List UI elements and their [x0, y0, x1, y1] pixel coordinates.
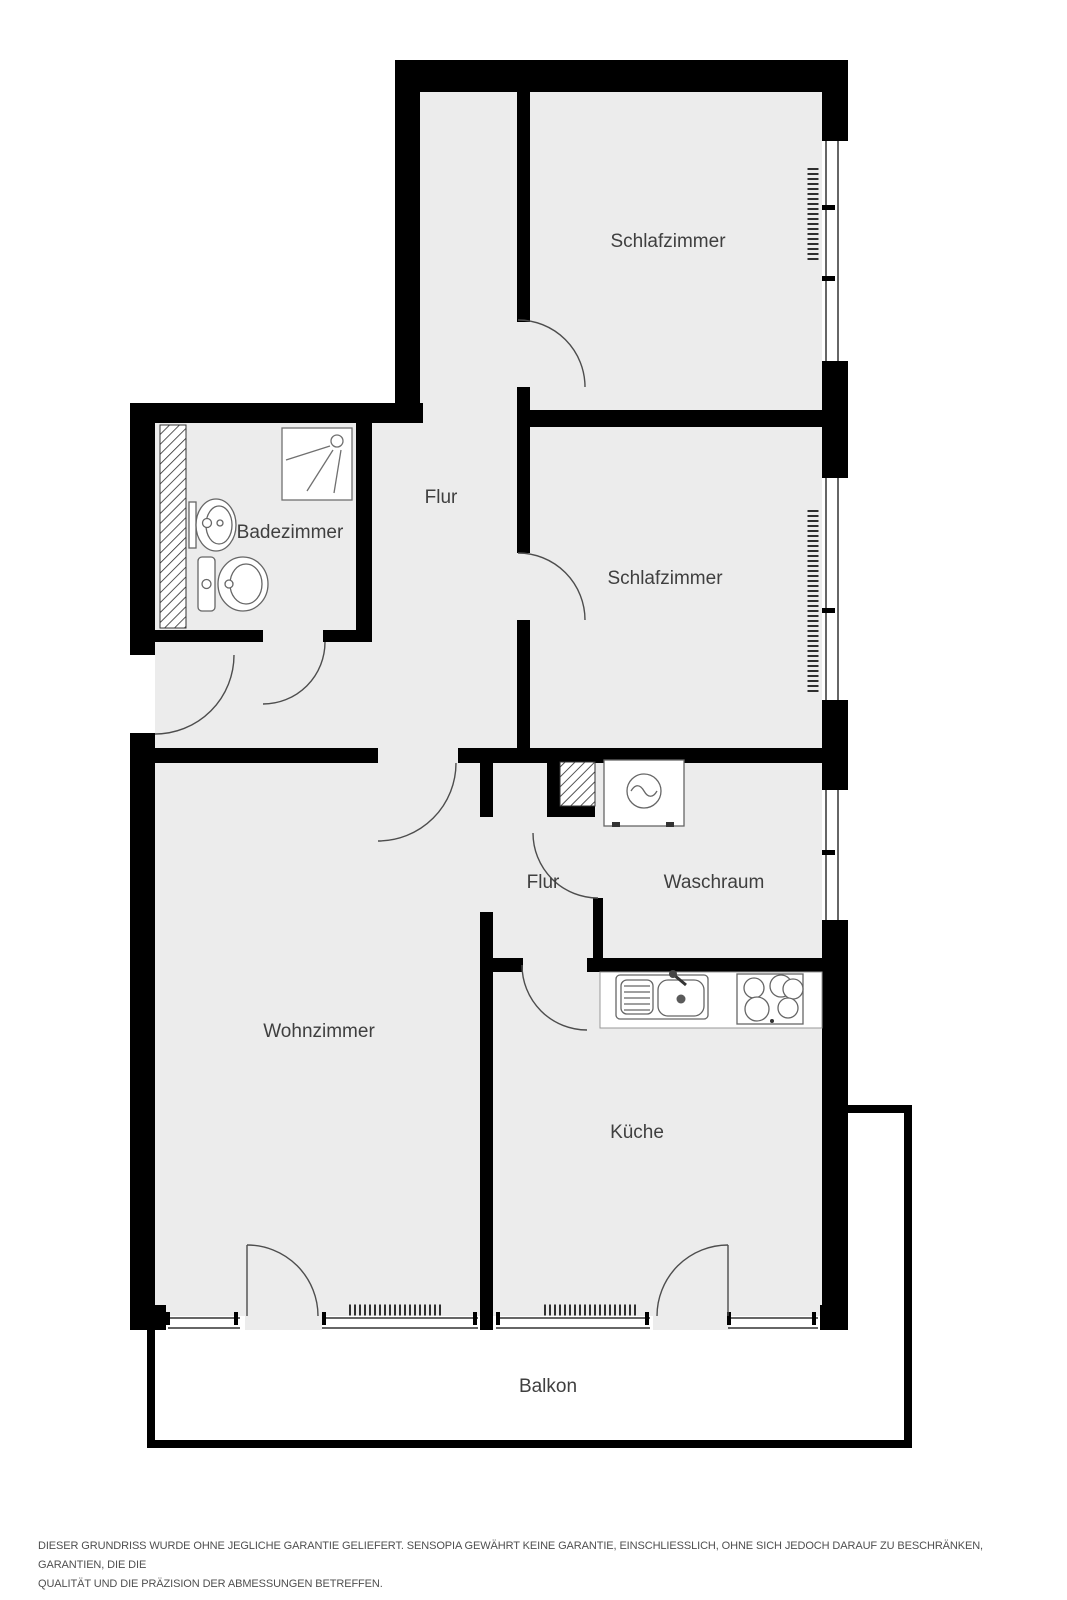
shower-icon — [282, 428, 352, 500]
shaft-hatch — [560, 762, 595, 806]
room-label-flur-upper: Flur — [425, 487, 458, 508]
room-label-wohnzimmer: Wohnzimmer — [263, 1021, 375, 1042]
room-label-badezimmer: Badezimmer — [237, 522, 344, 543]
room-label-flur-lower: Flur — [527, 872, 560, 893]
washbasin-icon — [189, 499, 236, 551]
disclaimer-line-1: DIESER GRUNDRISS WURDE OHNE JEGLICHE GAR… — [38, 1537, 1040, 1575]
washing-machine-icon — [604, 760, 684, 827]
floorplan-drawing: Schlafzimmer Schlafzimmer Flur Badezimme… — [0, 0, 1067, 1600]
room-label-schlafzimmer-mid: Schlafzimmer — [607, 568, 723, 589]
toilet-icon — [198, 557, 268, 611]
disclaimer-text: DIESER GRUNDRISS WURDE OHNE JEGLICHE GAR… — [38, 1537, 1040, 1594]
balcony-door-threshold — [653, 1316, 730, 1330]
room-label-schlafzimmer-top: Schlafzimmer — [610, 231, 726, 252]
floorplan-page: Schlafzimmer Schlafzimmer Flur Badezimme… — [0, 0, 1067, 1600]
room-label-balkon: Balkon — [519, 1376, 577, 1397]
shaft-hatch — [160, 425, 186, 628]
stove-icon — [737, 974, 803, 1024]
kitchen-sink-icon — [616, 970, 708, 1019]
disclaimer-line-2: QUALITÄT UND DIE PRÄZISION DER ABMESSUNG… — [38, 1575, 1040, 1594]
room-label-waschraum: Waschraum — [664, 872, 765, 893]
room-label-kueche: Küche — [610, 1122, 664, 1143]
balcony-door-threshold — [245, 1316, 322, 1330]
kitchen-counter — [600, 970, 822, 1028]
